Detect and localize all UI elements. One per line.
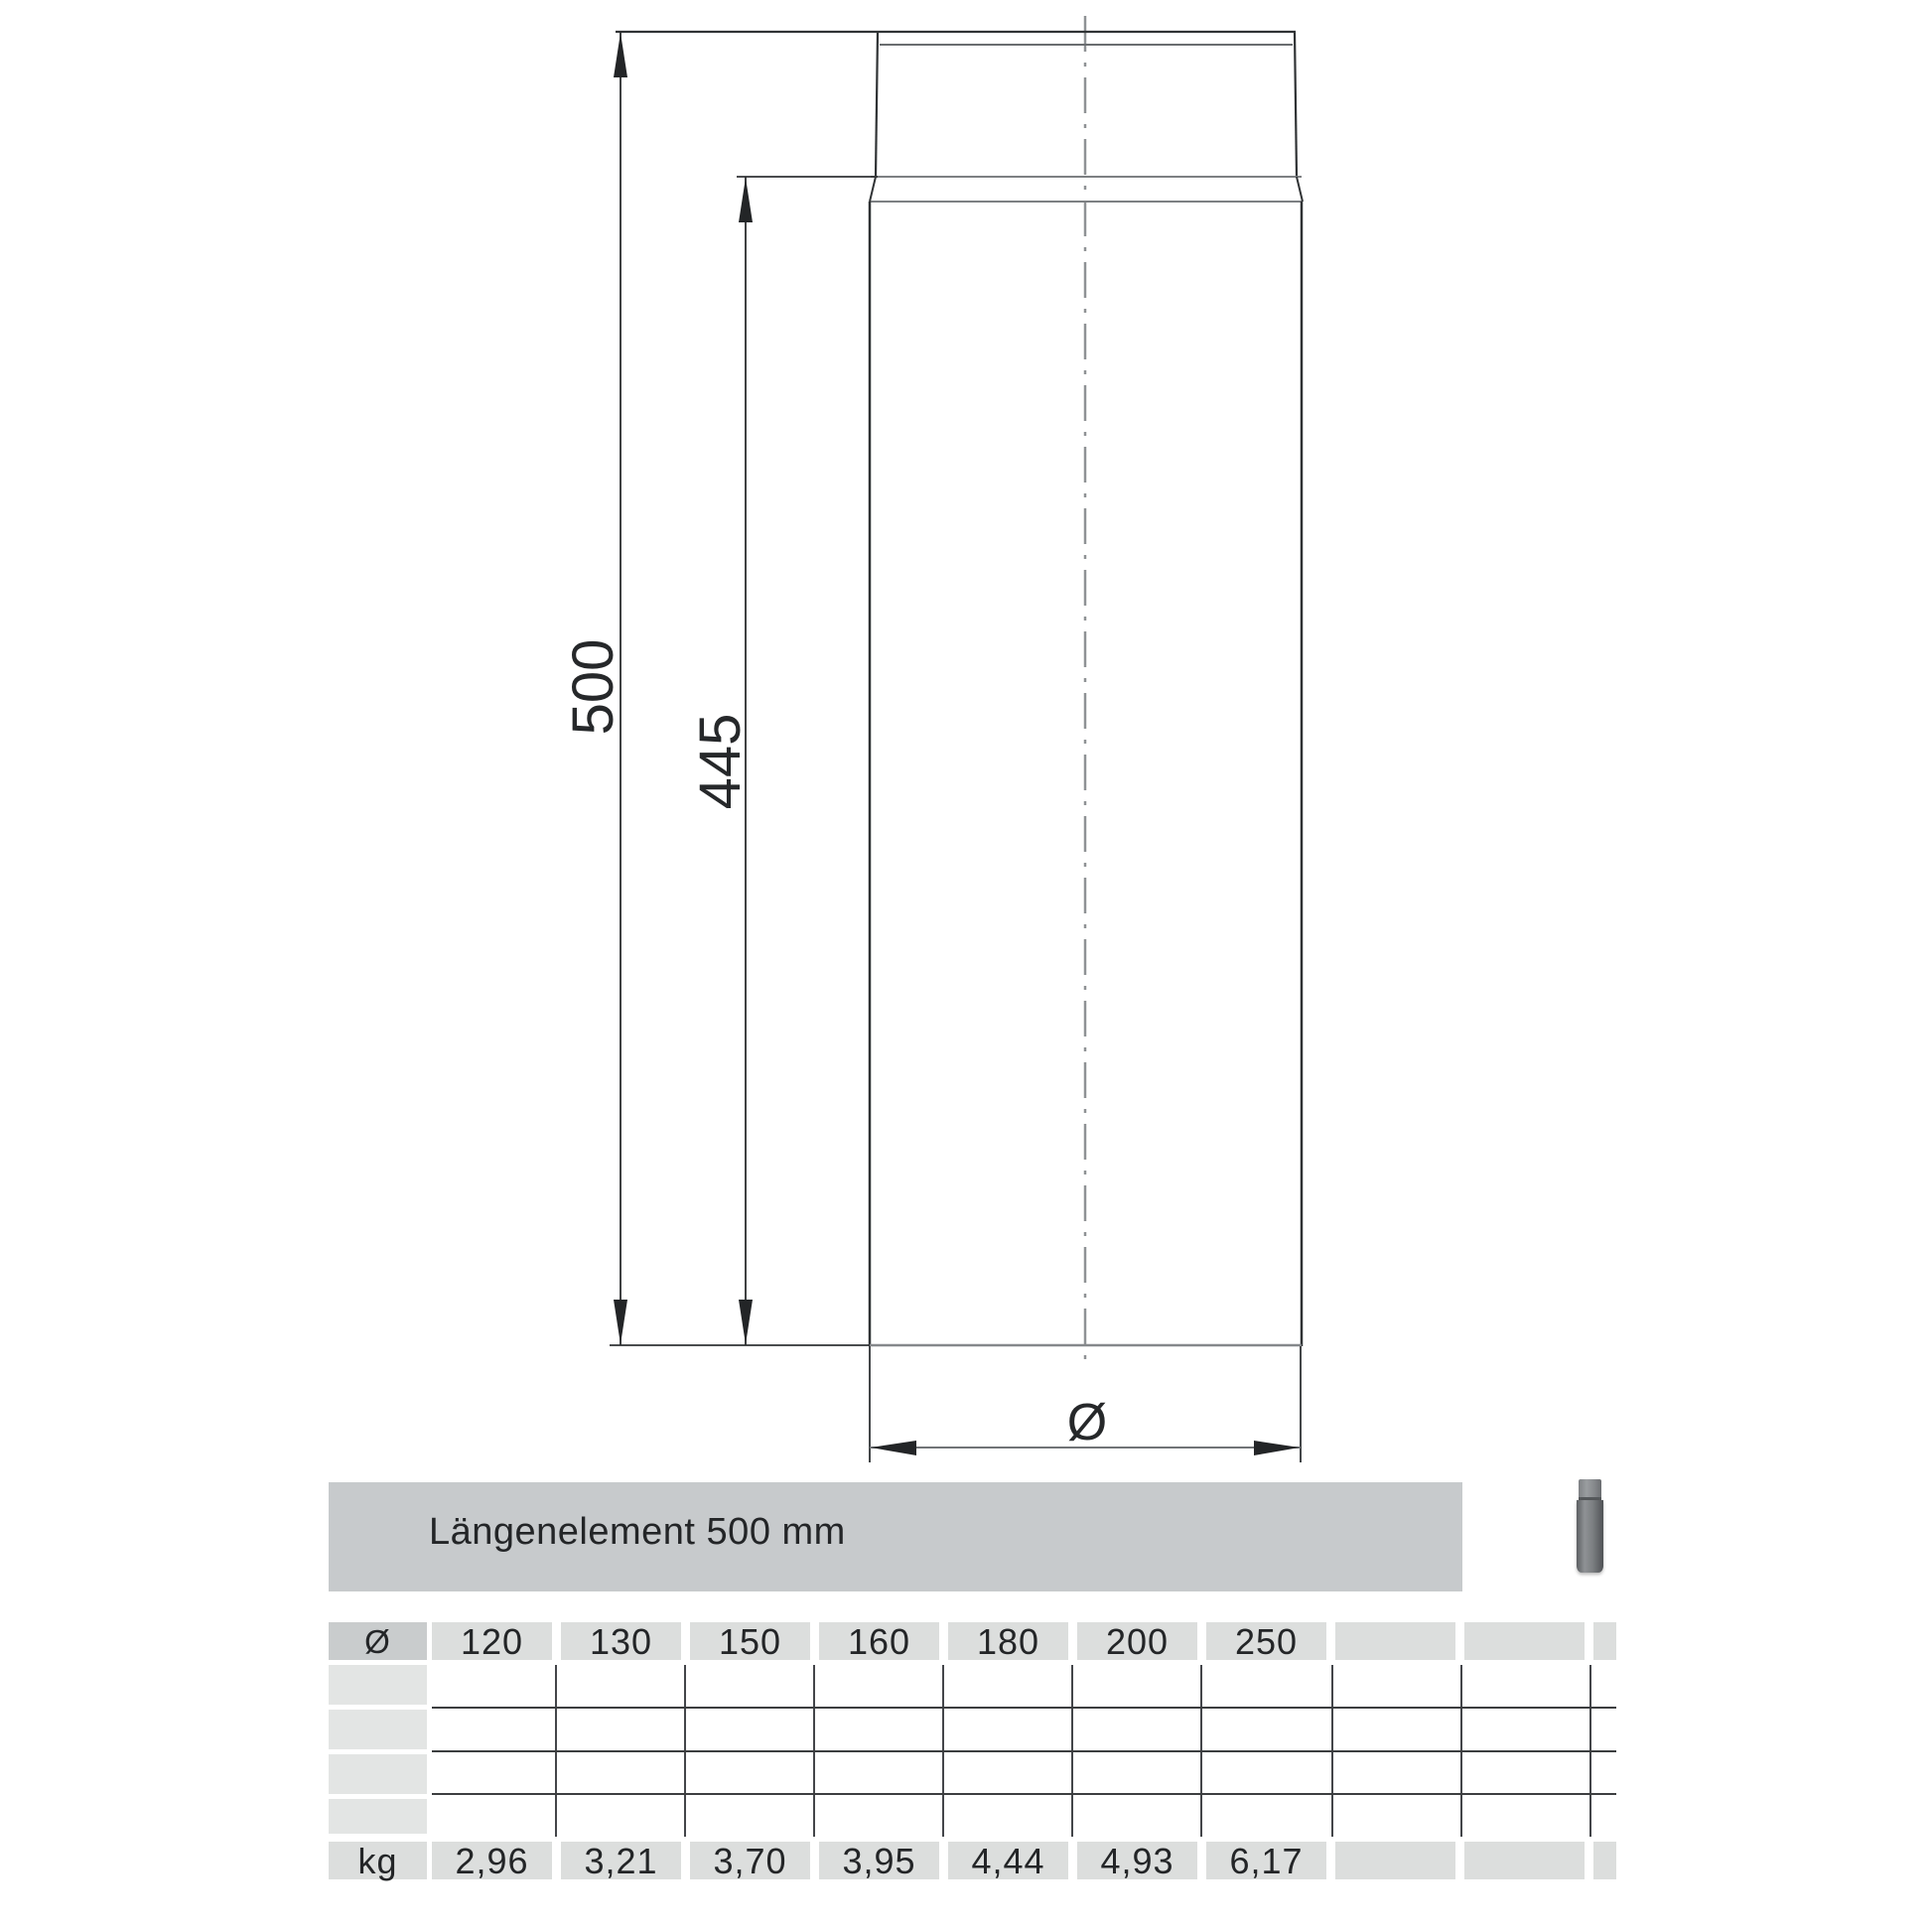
weight-value-cell-clipped	[1593, 1842, 1616, 1879]
table-grid-line	[432, 1793, 1616, 1795]
dimension-500: 500	[561, 32, 627, 1345]
empty-row-label-cell	[329, 1710, 427, 1749]
table-corner-diameter-cell: Ø	[329, 1622, 427, 1660]
catalog-page: 500 445 Ø Längenelement 500 mm Ø 120 130…	[0, 0, 1932, 1932]
extension-lines	[610, 177, 1301, 1462]
table-grid-line	[432, 1750, 1616, 1752]
diameter-header-cell: 120	[432, 1622, 552, 1660]
dimension-diameter: Ø	[870, 1394, 1301, 1455]
weight-value-cell-empty	[1464, 1842, 1585, 1879]
diameter-header-cell-clipped	[1593, 1622, 1616, 1660]
diameter-header-cell: 180	[948, 1622, 1068, 1660]
weight-value-cell: 3,21	[561, 1842, 681, 1879]
diameter-header-cell: 150	[690, 1622, 810, 1660]
dim-445-label: 445	[688, 714, 753, 810]
weight-value-cell: 4,93	[1077, 1842, 1197, 1879]
pipe-thumbnail-body	[1577, 1500, 1603, 1573]
empty-row-label-cell	[329, 1754, 427, 1794]
dim-500-label: 500	[561, 639, 625, 736]
pipe-outline	[616, 32, 1303, 1346]
diameter-header-cell-empty	[1335, 1622, 1455, 1660]
diameter-header-cell: 160	[819, 1622, 939, 1660]
weight-unit-cell: kg	[329, 1842, 427, 1879]
empty-row-label-cell	[329, 1799, 427, 1834]
weight-value-cell-empty	[1335, 1842, 1455, 1879]
weight-value-cell: 6,17	[1206, 1842, 1326, 1879]
weight-value-cell: 3,95	[819, 1842, 939, 1879]
technical-drawing: 500 445 Ø	[0, 0, 1932, 1469]
dimension-445: 445	[688, 177, 753, 1345]
pipe-product-thumbnail-icon	[1577, 1479, 1603, 1575]
empty-row-label-cell	[329, 1665, 427, 1705]
pipe-thumbnail-crimped-end	[1579, 1479, 1601, 1500]
weight-value-cell: 2,96	[432, 1842, 552, 1879]
diameter-header-cell: 130	[561, 1622, 681, 1660]
diameter-header-cell: 250	[1206, 1622, 1326, 1660]
product-title-bar: Längenelement 500 mm	[329, 1482, 1462, 1591]
product-title: Längenelement 500 mm	[329, 1511, 846, 1564]
diameter-header-cell: 200	[1077, 1622, 1197, 1660]
weight-value-cell: 3,70	[690, 1842, 810, 1879]
dim-diameter-label: Ø	[1067, 1394, 1107, 1451]
table-grid-line	[432, 1707, 1616, 1709]
weight-value-cell: 4,44	[948, 1842, 1068, 1879]
diameter-header-cell-empty	[1464, 1622, 1585, 1660]
